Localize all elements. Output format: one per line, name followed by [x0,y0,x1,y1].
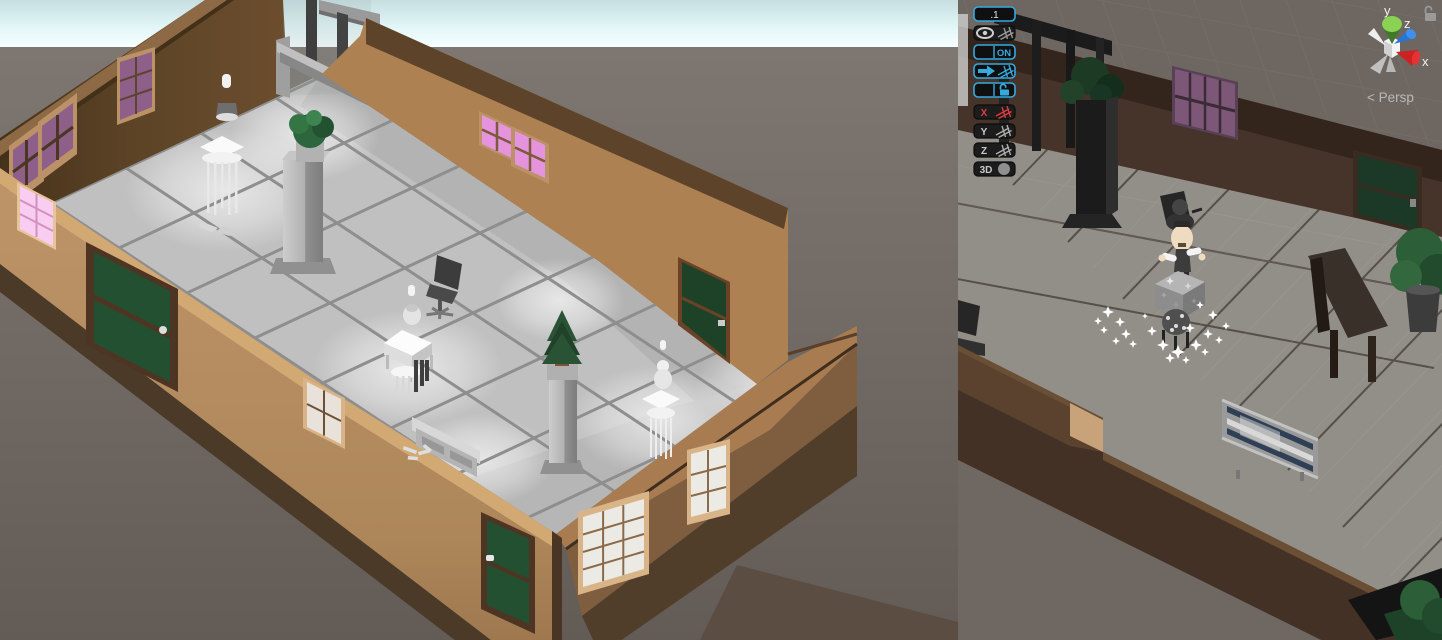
svg-text:X: X [981,108,988,119]
svg-text:x: x [1422,54,1429,69]
svg-text:y: y [1384,3,1391,18]
svg-text:ON: ON [997,48,1011,59]
svg-text:3D: 3D [980,165,993,176]
svg-text:Y: Y [981,127,988,138]
svg-text:Z: Z [981,146,987,157]
svg-text:< Persp: < Persp [1367,90,1414,105]
svg-text:.1: .1 [990,10,999,21]
svg-text:z: z [1404,16,1411,31]
